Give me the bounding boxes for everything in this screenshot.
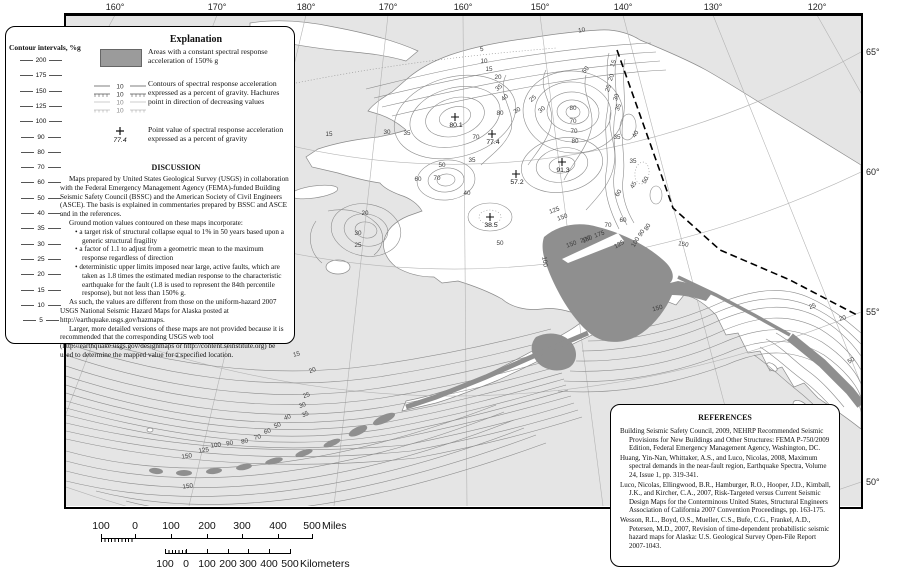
high-hazard-swatch — [100, 49, 142, 67]
references-box: REFERENCES Building Seismic Safety Counc… — [610, 404, 840, 567]
scalebar-tick — [186, 549, 187, 554]
contour-label: 70 — [569, 118, 577, 125]
scalebar-tick — [207, 549, 208, 554]
svg-text:10: 10 — [116, 100, 124, 107]
contour-label: 30 — [383, 129, 391, 136]
discussion-p4: Larger, more detailed versions of these … — [60, 325, 290, 360]
scalebar-number: 0 — [132, 520, 138, 532]
discussion-bullet: deterministic upper limits imposed near … — [82, 263, 290, 298]
scalebar-number: 100 — [156, 558, 174, 570]
svg-text:10: 10 — [116, 108, 124, 114]
contour-label: 10 — [480, 58, 488, 65]
svg-text:77.4: 77.4 — [113, 137, 126, 144]
scalebar-tick — [171, 534, 172, 539]
scalebar-tick — [242, 534, 243, 539]
discussion-bullets: a target risk of structural collapse equ… — [60, 228, 290, 298]
contour-label: 25 — [354, 242, 362, 249]
contour-symbol: 10 10 10 10 — [92, 81, 148, 113]
discussion-p2: Ground motion values contoured on these … — [60, 219, 290, 228]
contour-label: 35 — [629, 158, 637, 165]
latitude-label: 50° — [866, 477, 880, 487]
contour-interval-scale: Contour intervals, %g 200175150125100908… — [9, 43, 75, 52]
scalebar-number: 100 — [198, 558, 216, 570]
contour-label: 60 — [414, 176, 422, 183]
contour-label: 20 — [361, 210, 369, 217]
svg-text:10: 10 — [116, 84, 124, 91]
longitude-label: 120° — [808, 2, 827, 12]
contour-label: 15 — [485, 66, 493, 73]
contour-scale-title: Contour intervals, %g — [9, 43, 75, 52]
reference-entry: Huang, Yin-Nan, Whittaker, A.S., and Luc… — [620, 454, 832, 480]
scalebar-number: 0 — [183, 558, 189, 570]
contour-scale-row: 125 — [13, 103, 69, 110]
point-value: 38.5 — [484, 222, 497, 229]
point-value: 57.2 — [510, 179, 523, 186]
scalebar-number: 400 — [269, 520, 287, 532]
contour-label: 80 — [569, 105, 577, 112]
legend-item-point-text: Point value of spectral response acceler… — [148, 125, 290, 143]
scalebar-number: 100 — [92, 520, 110, 532]
scalebar-number: 500 — [303, 520, 321, 532]
scalebar-number: 100 — [162, 520, 180, 532]
contour-label: 50 — [438, 162, 446, 169]
contour-label: 35 — [613, 134, 621, 141]
contour-scale-row: 80 — [13, 149, 69, 156]
contour-scale-row: 200 — [13, 57, 69, 64]
contour-label: 70 — [604, 222, 612, 229]
scalebar-tick — [269, 549, 270, 554]
discussion-bullet: a target risk of structural collapse equ… — [82, 228, 290, 246]
latitude-label: 55° — [866, 307, 880, 317]
contour-label: 70 — [433, 175, 441, 182]
seismic-hazard-map-page: 5101520354025301050807070808070303035153… — [0, 0, 900, 574]
contour-scale-row: 90 — [13, 134, 69, 141]
contour-label: 30 — [354, 230, 362, 237]
longitude-label: 160° — [106, 2, 125, 12]
point-value: 80.1 — [449, 122, 462, 129]
longitude-label: 130° — [704, 2, 723, 12]
discussion-p1: Maps prepared by United States Geologica… — [60, 175, 290, 219]
contour-label: 15 — [325, 131, 333, 138]
reference-entry: Building Seismic Safety Council, 2009, N… — [620, 427, 832, 453]
scalebar-tick — [278, 534, 279, 539]
legend-item-contour-text: Contours of spectral response accelerati… — [148, 79, 290, 106]
scalebar-number: 300 — [233, 520, 251, 532]
scalebar-miles-unit: Miles — [322, 520, 347, 532]
point-value: 91.3 — [556, 167, 569, 174]
contour-label: 35 — [403, 130, 411, 137]
discussion-p3: As such, the values are different from t… — [60, 298, 290, 324]
contour-label: 40 — [463, 190, 471, 197]
discussion-title: DISCUSSION — [66, 163, 286, 172]
longitude-label: 170° — [208, 2, 227, 12]
contour-scale-row: 100 — [13, 118, 69, 125]
longitude-label: 150° — [531, 2, 550, 12]
scalebar-tick — [101, 534, 102, 539]
legend-item-area-text: Areas with a constant spectral response … — [148, 47, 290, 65]
scalebar-number: 300 — [239, 558, 257, 570]
longitude-label: 170° — [379, 2, 398, 12]
explanation-box: Contour intervals, %g 200175150125100908… — [5, 26, 295, 344]
latitude-label: 65° — [866, 47, 880, 57]
contour-label: 70 — [570, 128, 578, 135]
contour-label: 35 — [468, 157, 476, 164]
scalebar-number: 200 — [198, 520, 216, 532]
contour-label: 50 — [496, 240, 504, 247]
explanation-title: Explanation — [126, 34, 266, 45]
scalebar-tick — [290, 549, 291, 554]
contour-label: 80 — [496, 110, 504, 117]
longitude-label: 180° — [297, 2, 316, 12]
scalebar-number: 500 — [281, 558, 299, 570]
point-value-symbol: 77.4 — [108, 125, 132, 145]
scalebar-tick — [207, 534, 208, 539]
contour-scale-row: 175 — [13, 72, 69, 79]
point-value: 77.4 — [486, 139, 499, 146]
longitude-label: 160° — [454, 2, 473, 12]
scalebar-tick — [165, 549, 166, 554]
contour-label: 80 — [571, 138, 579, 145]
scalebar-tick — [135, 534, 136, 539]
scalebar-tick — [248, 549, 249, 554]
references-title: REFERENCES — [611, 413, 839, 422]
contour-label: 60 — [619, 217, 627, 224]
scalebar-tick — [228, 549, 229, 554]
scalebar-number: 200 — [219, 558, 237, 570]
latitude-label: 60° — [866, 167, 880, 177]
contour-label: 70 — [472, 134, 480, 141]
scalebar-number: 400 — [260, 558, 278, 570]
reference-entry: Wesson, R.L., Boyd, O.S., Mueller, C.S.,… — [620, 516, 832, 550]
discussion-bullet: a factor of 1.1 to adjust from a geometr… — [82, 245, 290, 263]
contour-scale-row: 150 — [13, 88, 69, 95]
scalebar-tick — [312, 534, 313, 539]
contour-label: 20 — [494, 74, 502, 81]
svg-text:10: 10 — [116, 92, 124, 99]
reference-entry: Luco, Nicolas, Ellingwood, B.R., Hamburg… — [620, 481, 832, 515]
longitude-label: 140° — [614, 2, 633, 12]
discussion-text: Maps prepared by United States Geologica… — [60, 175, 290, 360]
contour-scale-row: 70 — [13, 164, 69, 171]
scalebar-km-unit: Kilometers — [300, 558, 350, 570]
references-entries: Building Seismic Safety Council, 2009, N… — [620, 427, 832, 551]
